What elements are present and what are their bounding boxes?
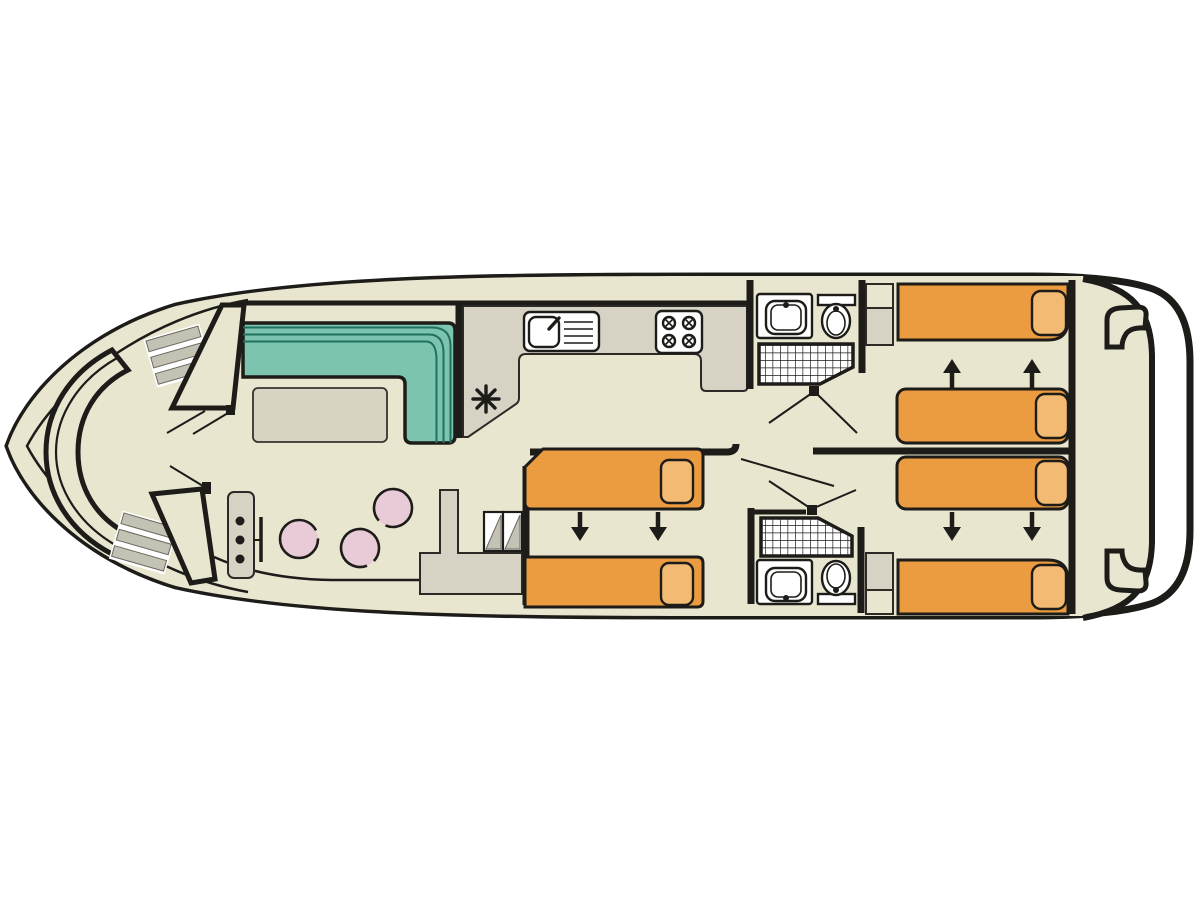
aft-port-locker bbox=[866, 308, 893, 345]
wardrobe bbox=[484, 512, 522, 551]
aft-stbd-locker bbox=[866, 553, 893, 590]
bathroom-fore-basin bbox=[757, 294, 812, 338]
galley-hob bbox=[656, 311, 702, 353]
helm-dot-2 bbox=[236, 536, 245, 545]
boat-floor-plan-canvas bbox=[0, 0, 1200, 900]
bathroom-aft-basin bbox=[757, 560, 812, 604]
heater-asterisk-icon bbox=[473, 386, 499, 412]
bow-door-post-bottom bbox=[202, 482, 211, 494]
saloon-table bbox=[253, 388, 387, 442]
aft-stbd-pillow-inner bbox=[1036, 461, 1068, 505]
aft-port-pillow-inner bbox=[1036, 394, 1068, 438]
mid-cabin-pillow-1 bbox=[661, 460, 693, 503]
helm-stool-1 bbox=[280, 520, 318, 558]
aft-stbd-shelf bbox=[866, 590, 893, 614]
aft-stbd-pillow-outer bbox=[1032, 565, 1066, 609]
aft-port-pillow-outer bbox=[1032, 291, 1066, 335]
helm-dot-1 bbox=[236, 517, 245, 526]
boat-floor-plan bbox=[0, 0, 1200, 900]
aft-port-shelf bbox=[866, 284, 893, 308]
helm-dot-3 bbox=[236, 555, 245, 564]
mid-cabin-pillow-2 bbox=[661, 563, 693, 605]
galley-sink bbox=[524, 312, 599, 351]
helm-console bbox=[228, 492, 254, 578]
